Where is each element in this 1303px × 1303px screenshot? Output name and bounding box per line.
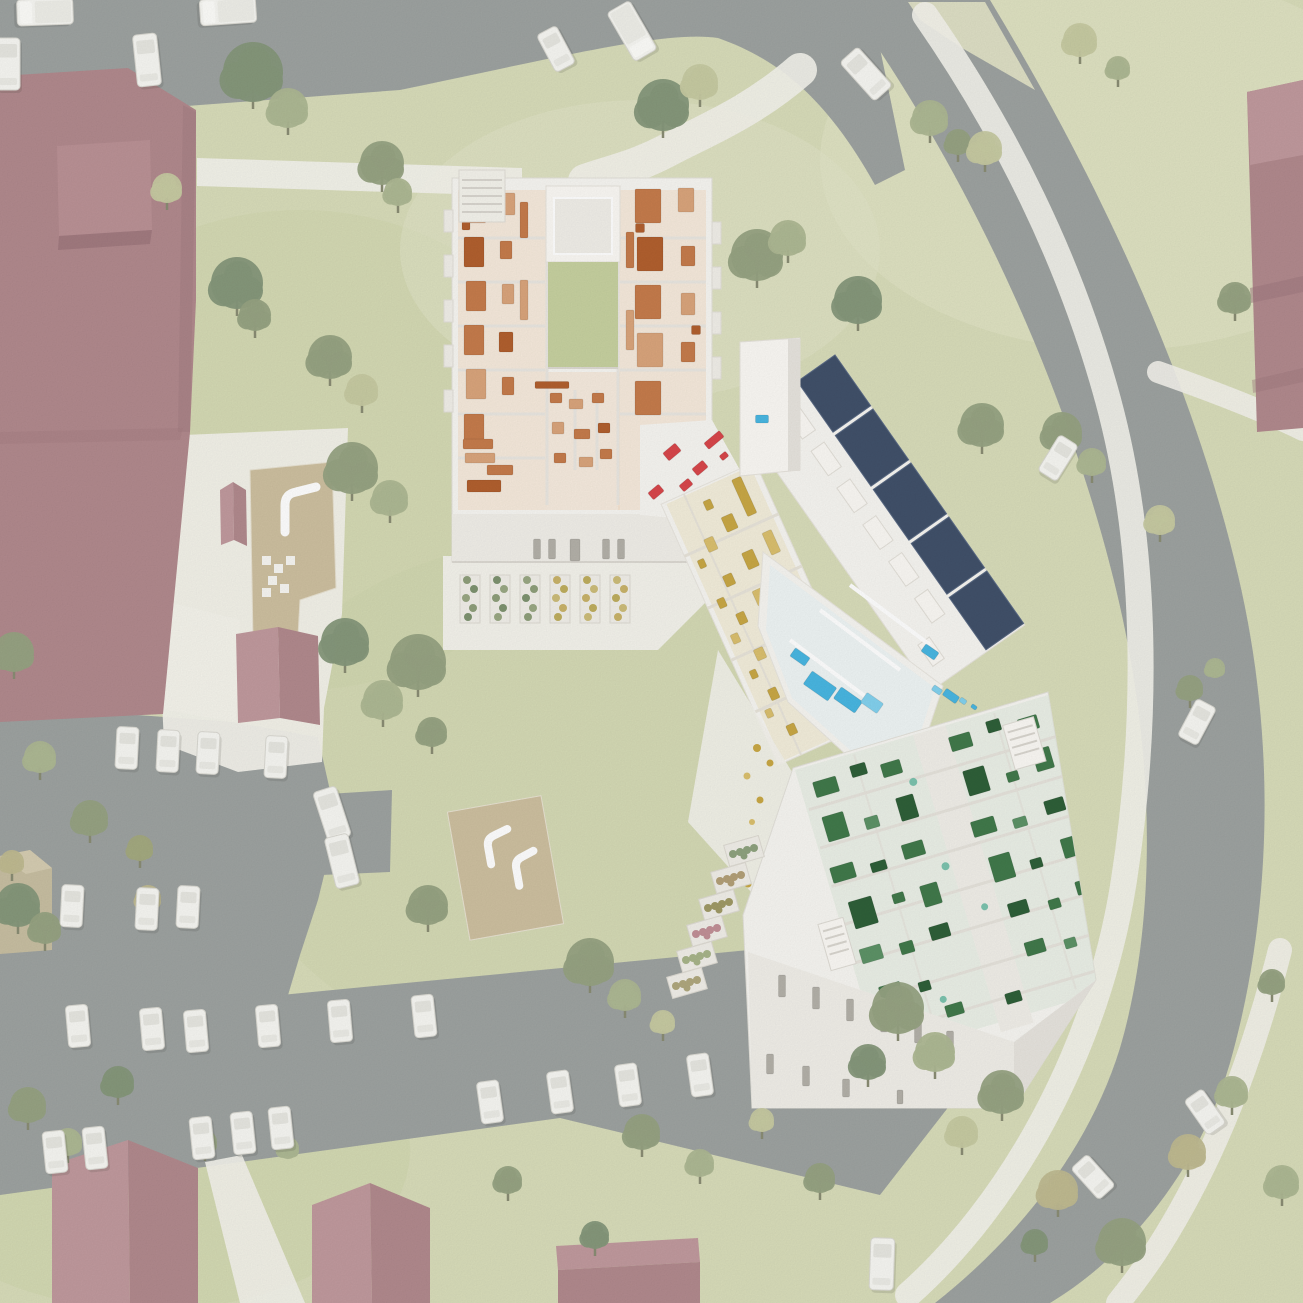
site-plan <box>0 0 1303 1303</box>
grain-overlay <box>0 0 1303 1303</box>
site-plan-stage <box>0 0 1303 1303</box>
